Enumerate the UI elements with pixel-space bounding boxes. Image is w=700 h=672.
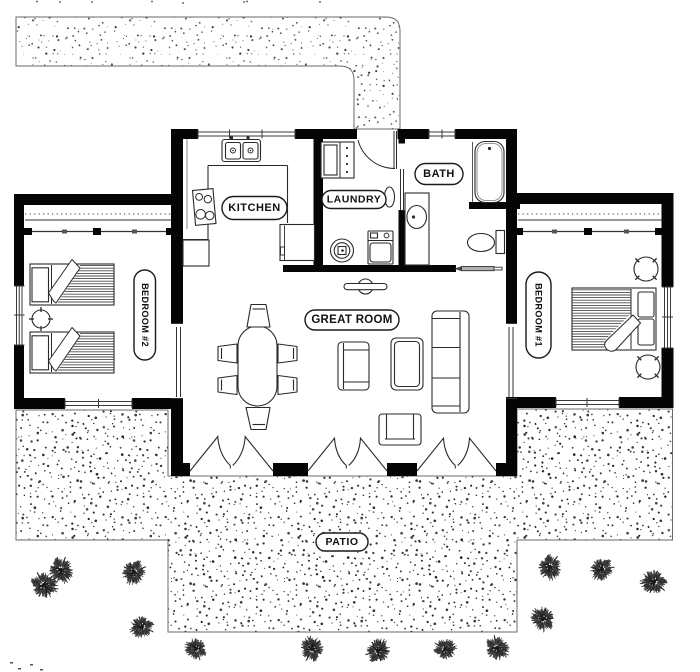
svg-text:LAUNDRY: LAUNDRY (327, 194, 381, 206)
svg-text:BEDROOM #1: BEDROOM #1 (534, 283, 544, 347)
svg-text:KITCHEN: KITCHEN (228, 202, 280, 214)
svg-text:PATIO: PATIO (325, 536, 358, 548)
svg-text:GREAT ROOM: GREAT ROOM (311, 314, 392, 326)
svg-text:BEDROOM #2: BEDROOM #2 (140, 283, 150, 347)
svg-text:BATH: BATH (423, 168, 455, 180)
